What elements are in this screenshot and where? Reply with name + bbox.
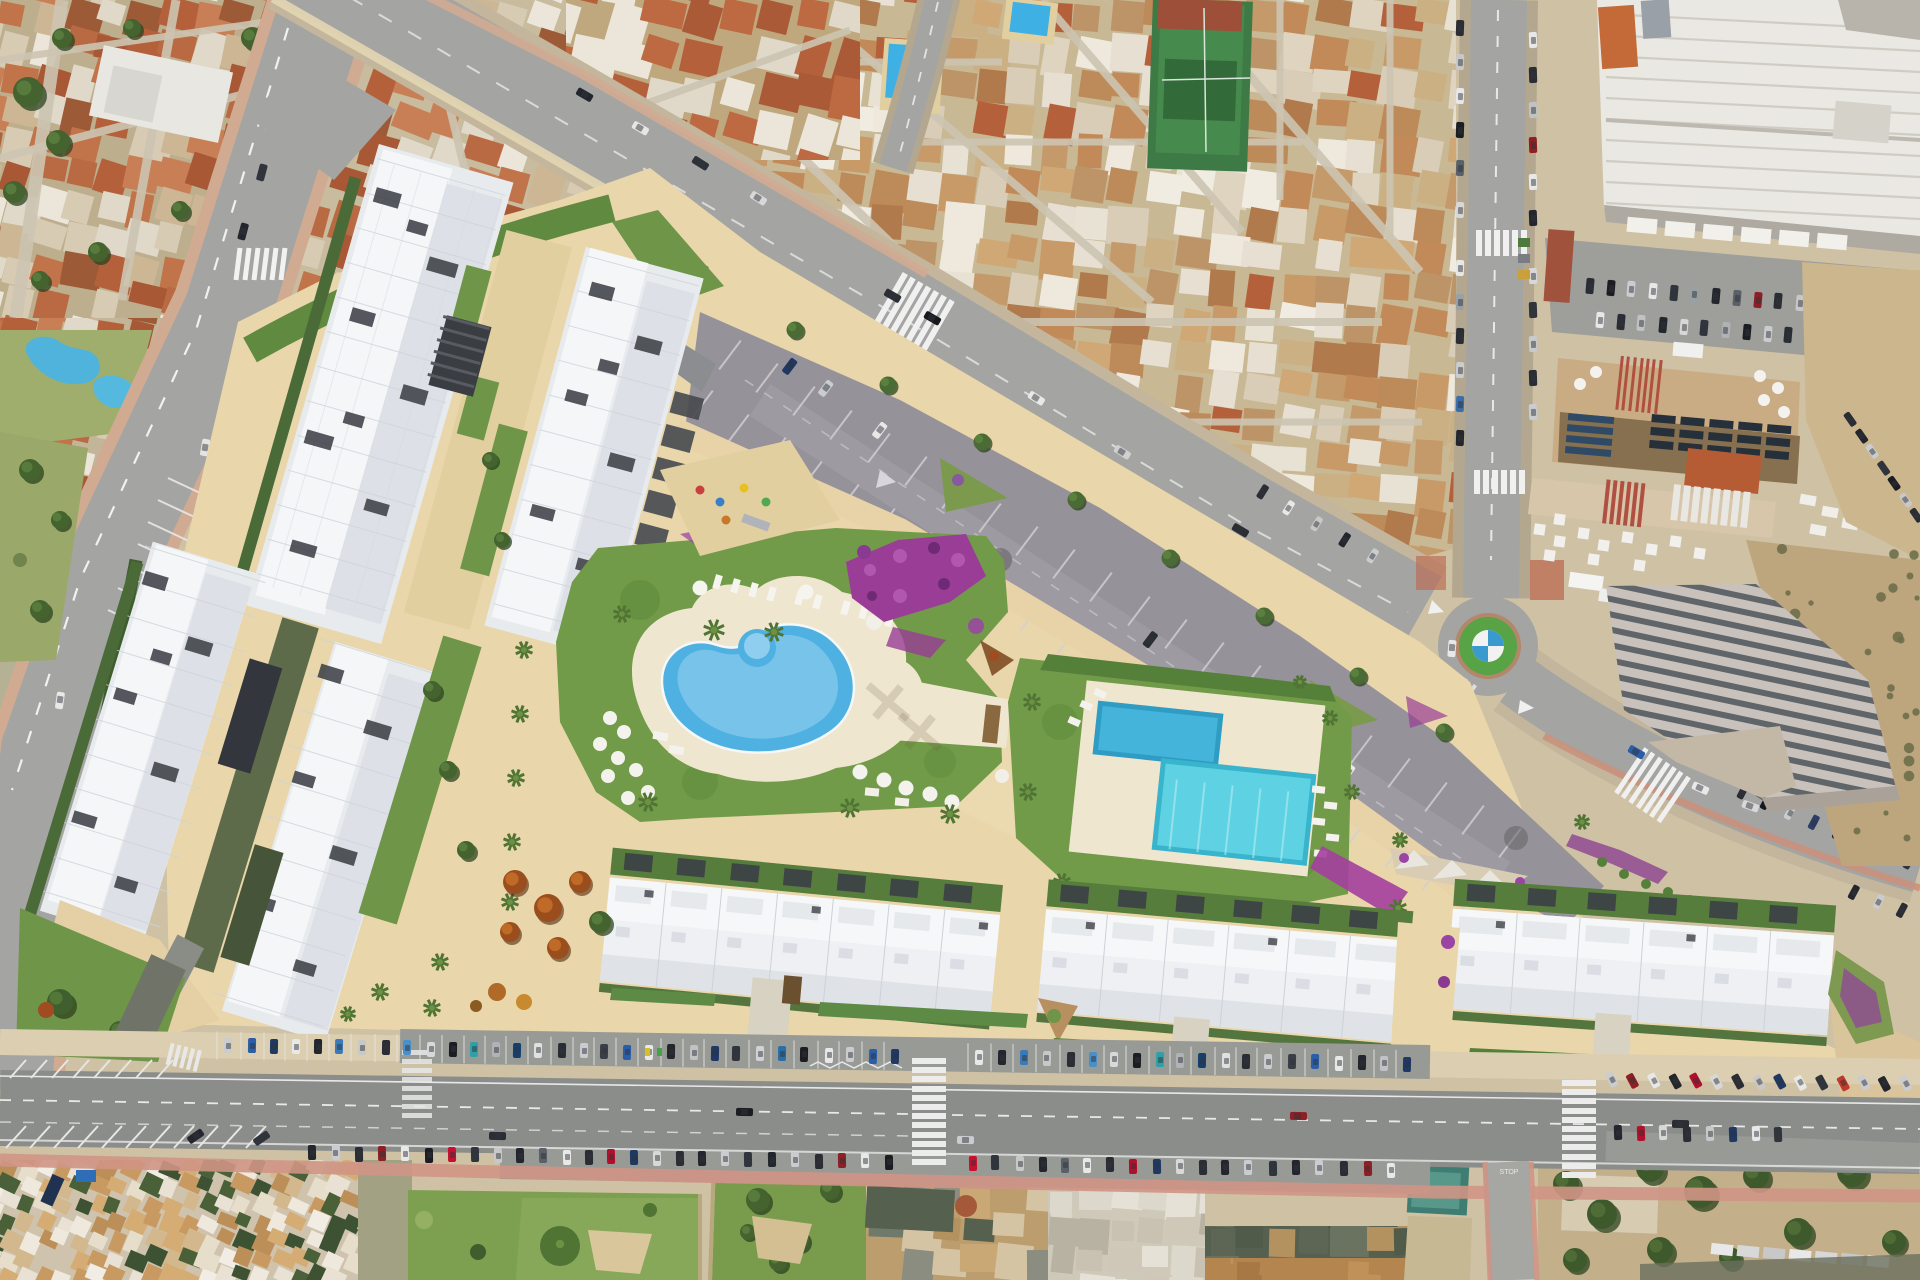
svg-text:STOP: STOP [1500,1169,1519,1176]
